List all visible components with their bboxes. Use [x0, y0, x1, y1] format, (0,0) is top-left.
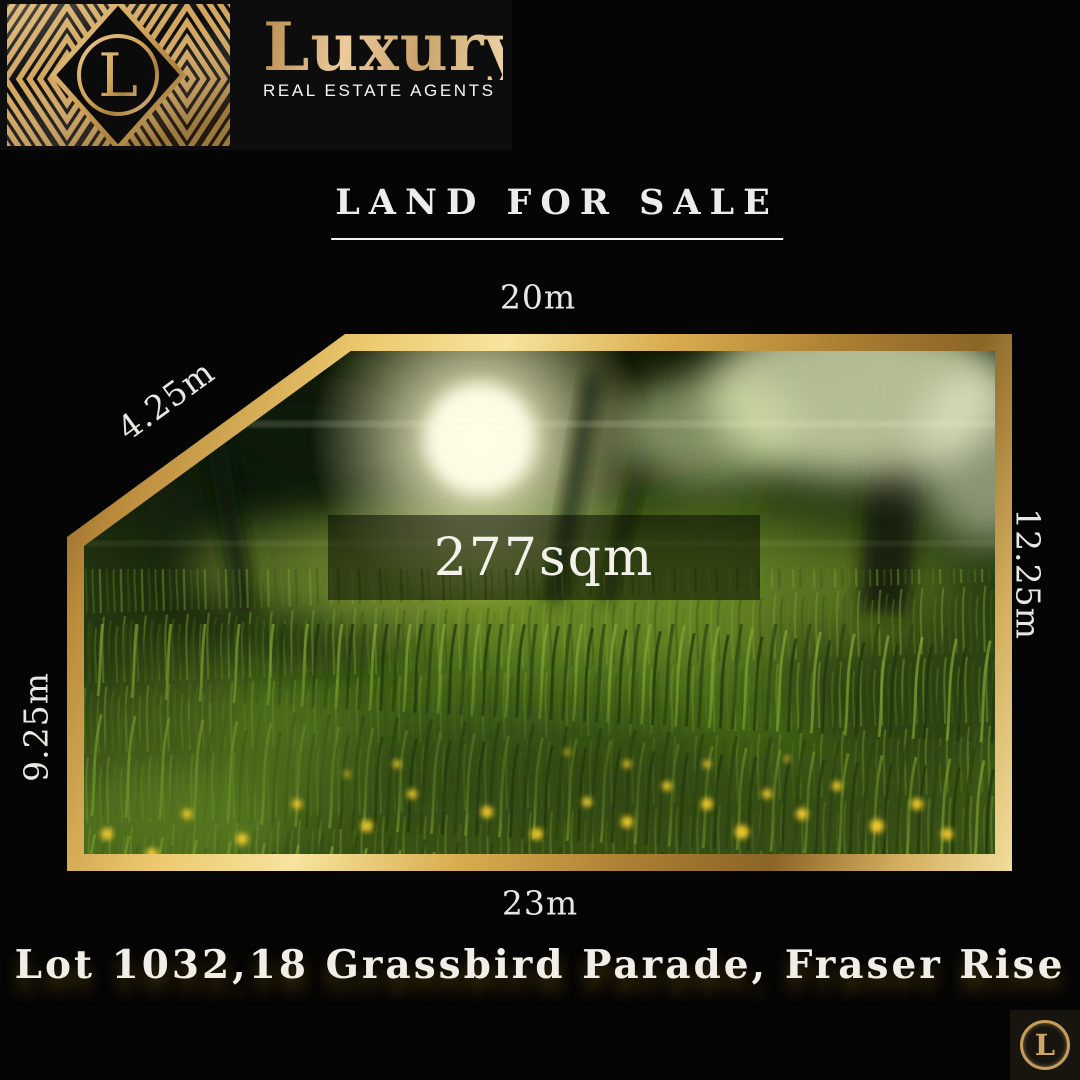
- dimension-diagonal-label: 4.25m: [110, 352, 222, 448]
- dimension-right-label: 12.25m: [1009, 508, 1048, 640]
- poster: L Luxury REAL ESTATE AGENTS LAND FOR SAL…: [0, 0, 1080, 1080]
- page-title: LAND FOR SALE: [331, 182, 783, 240]
- brand-monogram-letter: L: [98, 41, 138, 111]
- footer-monogram-icon: L: [1020, 1020, 1070, 1070]
- land-plot-outline: 277sqm: [67, 334, 1012, 871]
- brand-pattern: L: [7, 4, 230, 146]
- brand-tagline: REAL ESTATE AGENTS: [263, 81, 503, 101]
- footer-chip: L: [1010, 1010, 1080, 1080]
- dimension-left-label: 9.25m: [17, 672, 56, 782]
- area-label: 277sqm: [434, 528, 655, 588]
- dimension-top-label: 20m: [500, 278, 576, 317]
- address: Lot 1032,18 Grassbird Parade, Fraser Ris…: [0, 942, 1080, 988]
- art-deco-monogram-icon: L: [7, 4, 230, 146]
- meadow-scene: [67, 334, 1012, 871]
- land-photo: [67, 334, 1012, 871]
- area-badge: 277sqm: [328, 515, 760, 600]
- brand-banner: L Luxury REAL ESTATE AGENTS: [0, 0, 512, 150]
- brand-name: Luxury: [263, 14, 503, 80]
- dimension-bottom-label: 23m: [502, 884, 578, 923]
